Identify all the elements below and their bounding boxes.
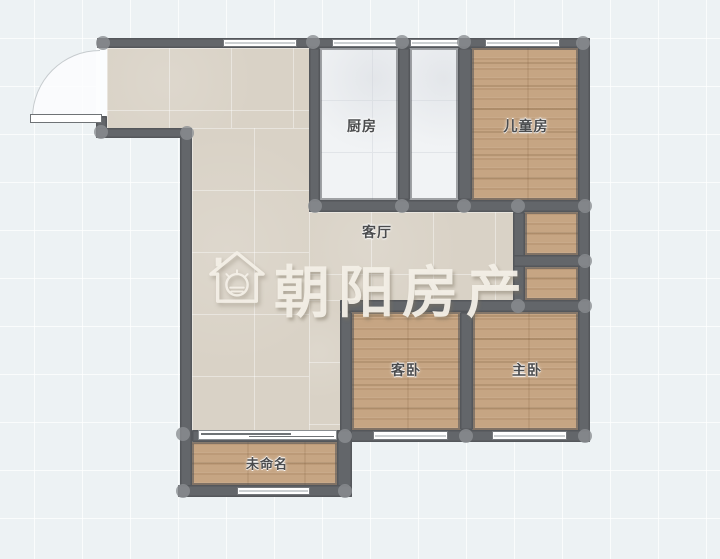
wall-kitchen-right[interactable] (398, 48, 410, 200)
room-label-master: 主卧 (512, 360, 542, 380)
wall-node-handle[interactable] (338, 429, 352, 443)
wall-node-handle[interactable] (96, 36, 110, 50)
wall-node-handle[interactable] (576, 36, 590, 50)
room-label-kitchen: 厨房 (347, 116, 377, 136)
wall-node-handle[interactable] (395, 199, 409, 213)
wall-mid-horizontal[interactable] (309, 200, 590, 212)
door-swing-arc-icon (32, 50, 100, 118)
wall-node-handle[interactable] (459, 429, 473, 443)
sliding-door-balcony[interactable] (198, 430, 337, 440)
room-floor-closet-1[interactable] (525, 212, 578, 255)
wall-right[interactable] (578, 38, 590, 442)
wall-node-handle[interactable] (457, 35, 471, 49)
wall-node-handle[interactable] (395, 35, 409, 49)
wall-node-handle[interactable] (578, 254, 592, 268)
wall-living-guest[interactable] (340, 312, 352, 442)
watermark-brand-text: 朝阳房产 (274, 248, 530, 329)
sliding-door-panel (201, 433, 291, 435)
window-top-children[interactable] (485, 39, 560, 47)
wall-node-handle[interactable] (176, 484, 190, 498)
room-label-children: 儿童房 (504, 116, 549, 136)
wall-node-handle[interactable] (94, 125, 108, 139)
wall-bathroom-right[interactable] (458, 48, 472, 200)
wall-node-handle[interactable] (578, 429, 592, 443)
entry-door[interactable] (30, 114, 102, 123)
room-floor-closet-2[interactable] (525, 267, 578, 300)
wall-node-handle[interactable] (457, 199, 471, 213)
wall-node-handle[interactable] (180, 126, 194, 140)
floor-plan-canvas: 厨房 儿童房 客厅 客卧 主卧 未命名 朝阳房产 (0, 0, 720, 559)
room-floor-bathroom[interactable] (410, 48, 458, 200)
wall-node-handle[interactable] (578, 299, 592, 313)
wall-node-handle[interactable] (176, 427, 190, 441)
wall-bedroom-divider[interactable] (460, 312, 473, 430)
wall-node-handle[interactable] (338, 484, 352, 498)
wall-node-handle[interactable] (306, 35, 320, 49)
house-sun-logo-icon (208, 248, 266, 306)
wall-nook-bottom[interactable] (96, 128, 192, 138)
entry-nook-floor[interactable] (107, 48, 309, 128)
sliding-door-panel (249, 436, 334, 438)
window-top-bathroom[interactable] (410, 39, 460, 47)
window-guest-bottom[interactable] (373, 431, 448, 440)
room-label-guest: 客卧 (391, 360, 421, 380)
window-balcony-bottom[interactable] (237, 487, 310, 495)
wall-left[interactable] (180, 128, 192, 497)
wall-node-handle[interactable] (308, 199, 322, 213)
room-label-living: 客厅 (362, 222, 392, 242)
wall-node-handle[interactable] (511, 199, 525, 213)
window-master-bottom[interactable] (492, 431, 567, 440)
wall-node-handle[interactable] (578, 199, 592, 213)
window-top-kitchen[interactable] (332, 39, 397, 47)
window-top-1[interactable] (223, 39, 297, 47)
room-label-unnamed: 未命名 (246, 454, 288, 473)
wall-kitchen-left[interactable] (309, 48, 320, 212)
